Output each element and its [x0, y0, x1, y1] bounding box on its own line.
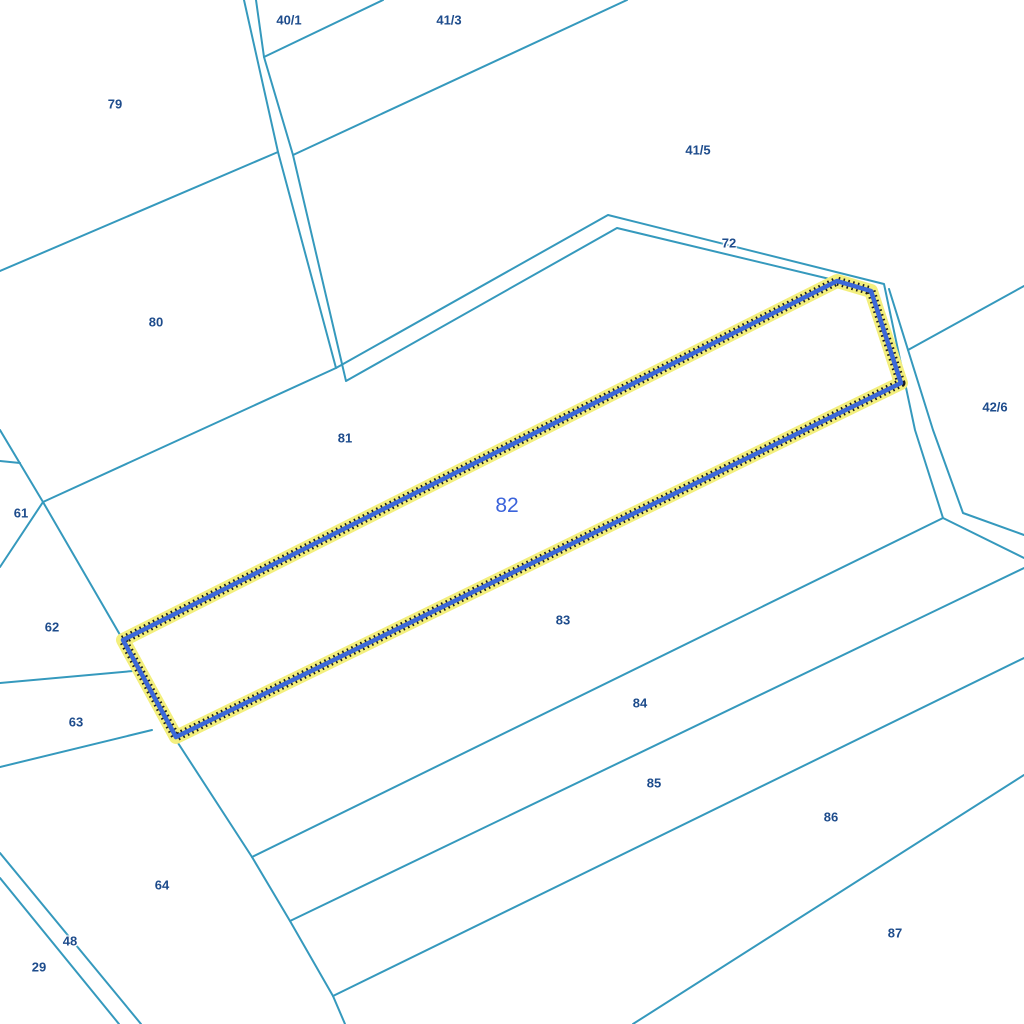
boundary-63-64 — [0, 730, 152, 767]
boundary-41-3-41-5 — [293, 0, 627, 155]
boundary-west-upper — [0, 430, 43, 502]
cadastral-map-canvas[interactable]: 7940/141/341/5728042/6816162838463858664… — [0, 0, 1024, 1024]
boundary-62-81 — [43, 502, 123, 640]
boundary-83-84 — [252, 518, 943, 857]
road-sw-upper-edge — [0, 853, 141, 1024]
boundary-85-86 — [333, 658, 1024, 996]
boundary-west-notch — [0, 461, 20, 463]
boundary-40-1-41-3 — [264, 0, 383, 57]
selected-parcel-outline — [123, 281, 901, 737]
boundary-86-87 — [633, 775, 1024, 1024]
parcel-boundaries-layer — [0, 0, 1024, 1024]
selected-parcel-dotted-boundary — [123, 281, 901, 737]
boundary-64-east — [178, 743, 345, 1024]
selected-parcel-halo — [123, 281, 901, 737]
boundary-42-6-north — [908, 286, 1024, 350]
road-east-right-edge — [889, 289, 1024, 535]
boundary-61-62 — [0, 502, 43, 567]
road-nw-outer-edge — [244, 0, 1024, 558]
road-sw-lower-edge — [0, 878, 119, 1024]
selected-parcel-highlight[interactable] — [123, 281, 901, 737]
boundary-62-63 — [0, 671, 133, 683]
boundary-79-80 — [0, 152, 278, 271]
boundary-80-81 — [43, 368, 336, 502]
